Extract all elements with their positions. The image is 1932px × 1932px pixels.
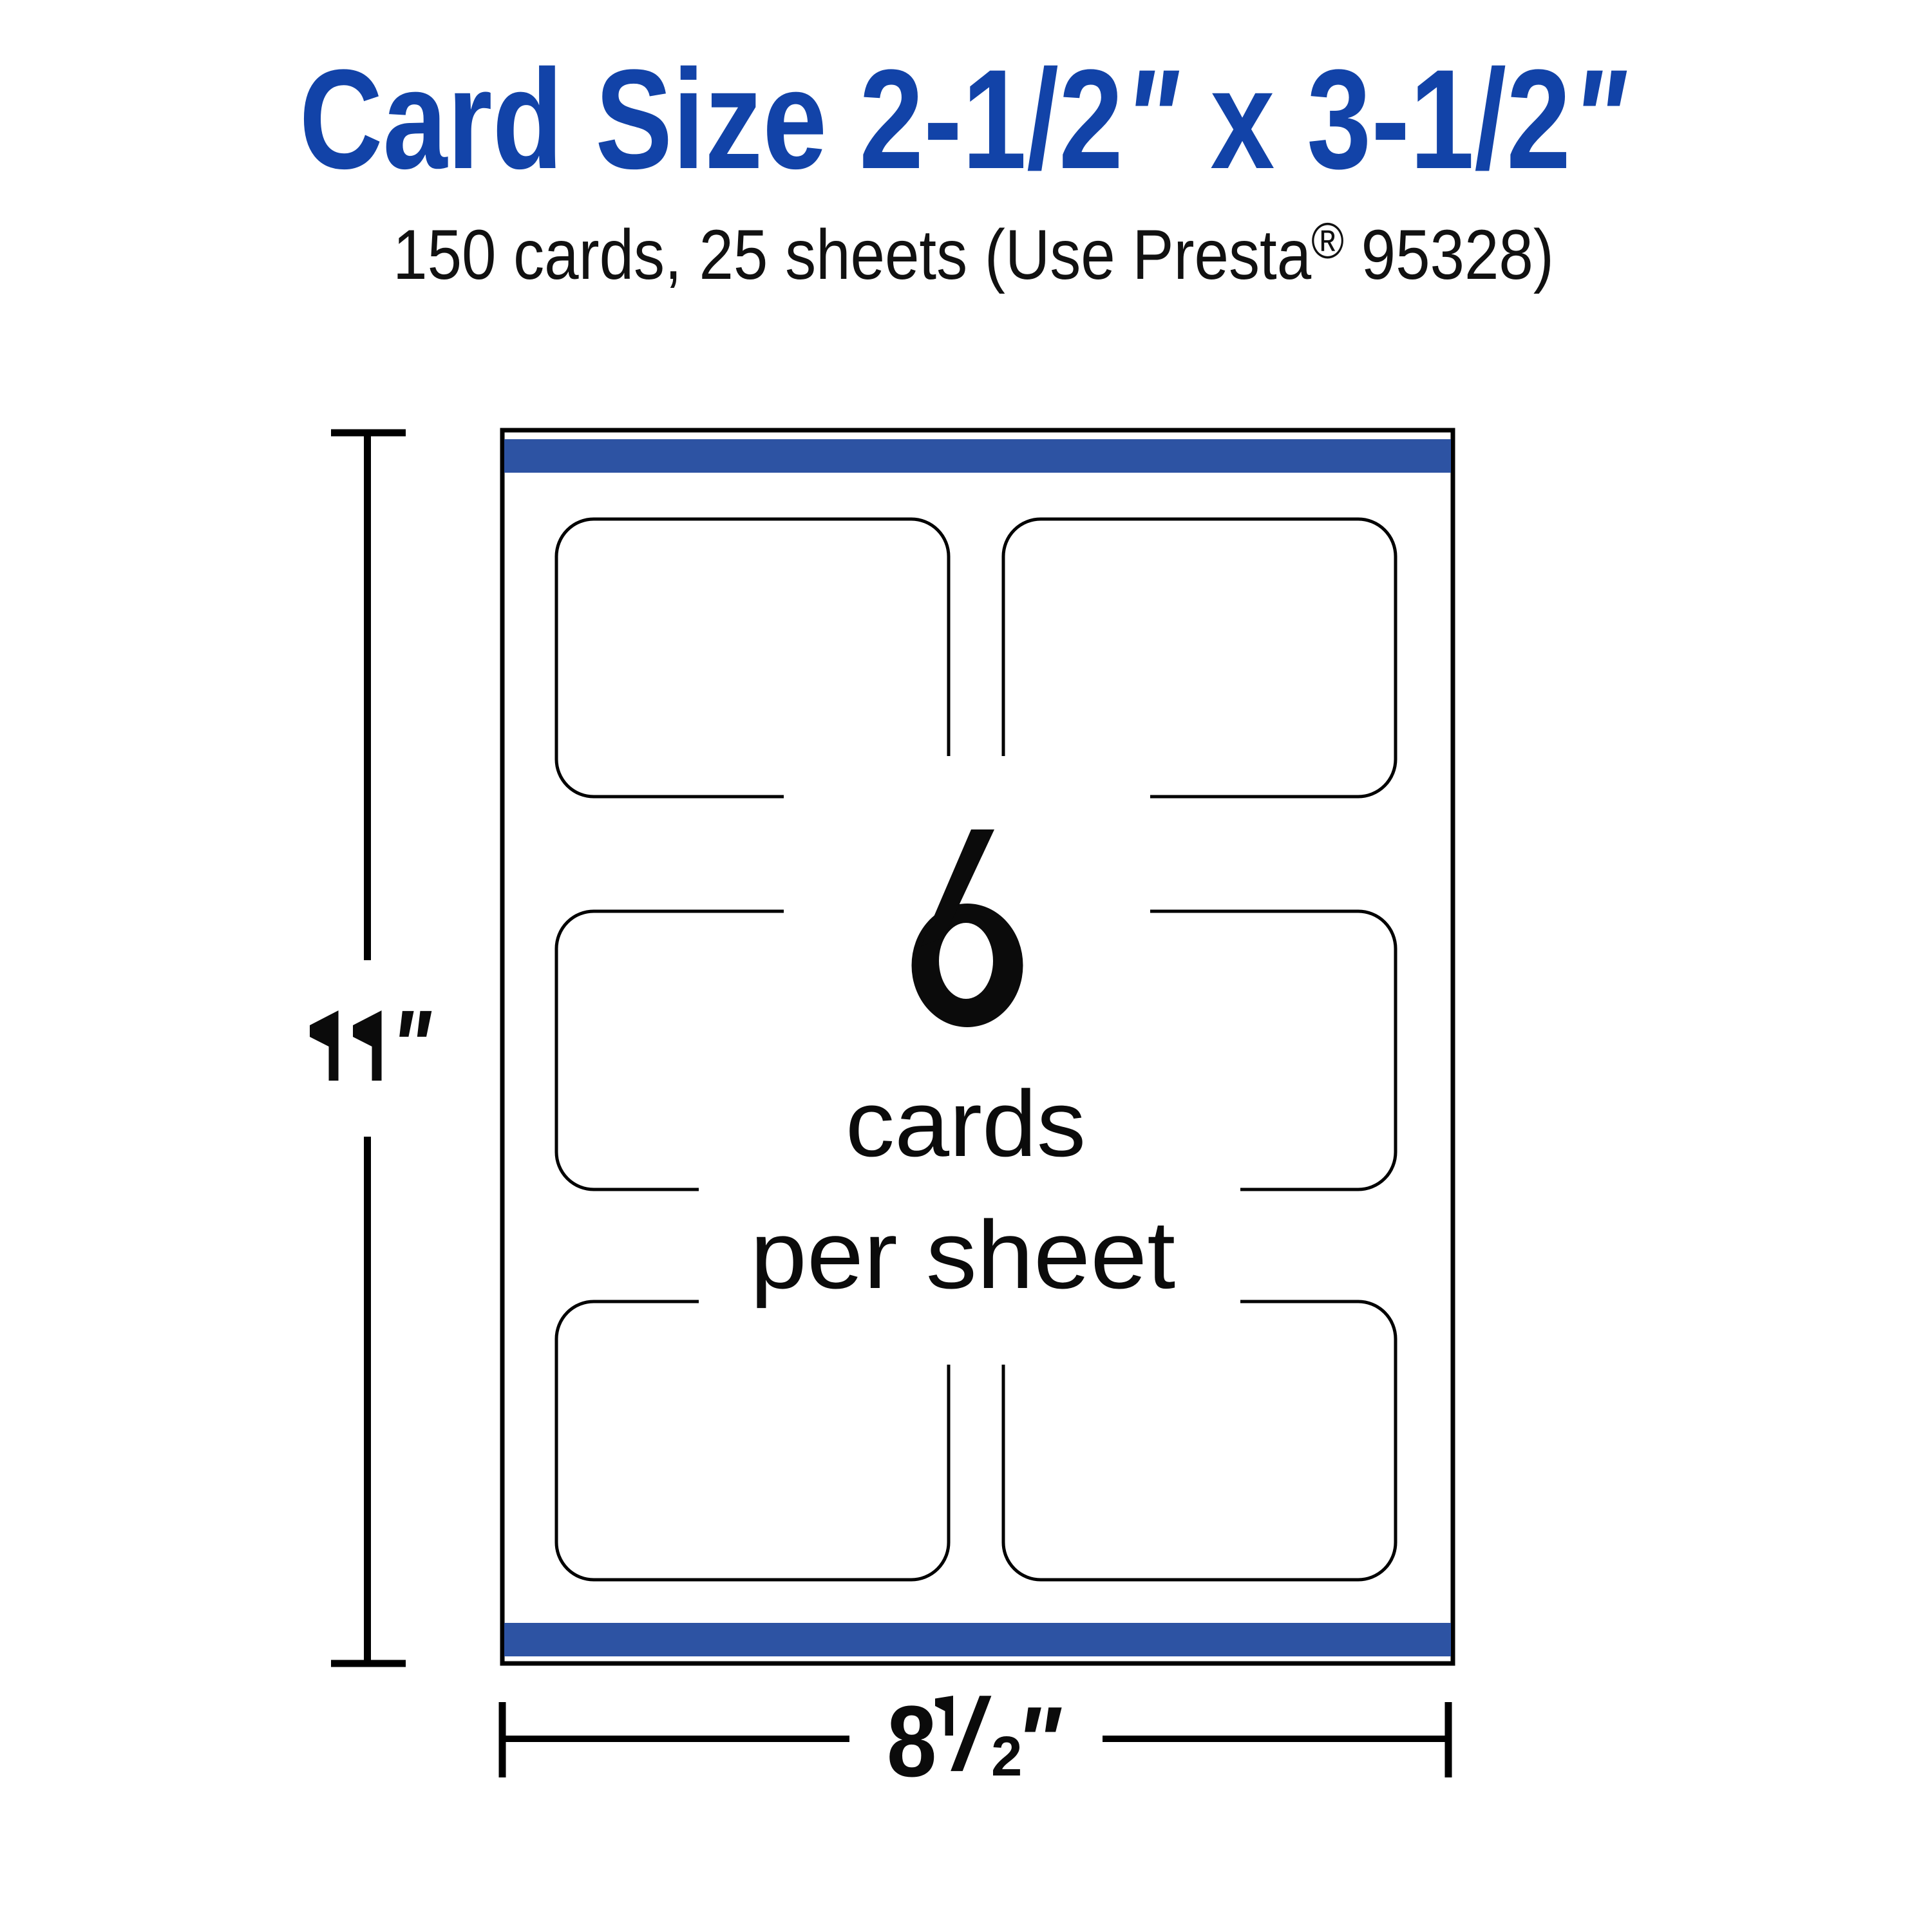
svg-text:Card Size 2-1/2" x 3-1/2": Card Size 2-1/2" x 3-1/2" xyxy=(299,40,1627,198)
svg-text:": " xyxy=(390,989,432,1104)
svg-text:8: 8 xyxy=(887,1685,937,1797)
svg-text:cards: cards xyxy=(846,1071,1086,1176)
svg-text:150 cards, 25 sheets (Use Pres: 150 cards, 25 sheets (Use Presta® 95328) xyxy=(393,213,1554,294)
svg-text:per sheet: per sheet xyxy=(750,1200,1175,1309)
svg-text:": " xyxy=(1014,1687,1062,1796)
